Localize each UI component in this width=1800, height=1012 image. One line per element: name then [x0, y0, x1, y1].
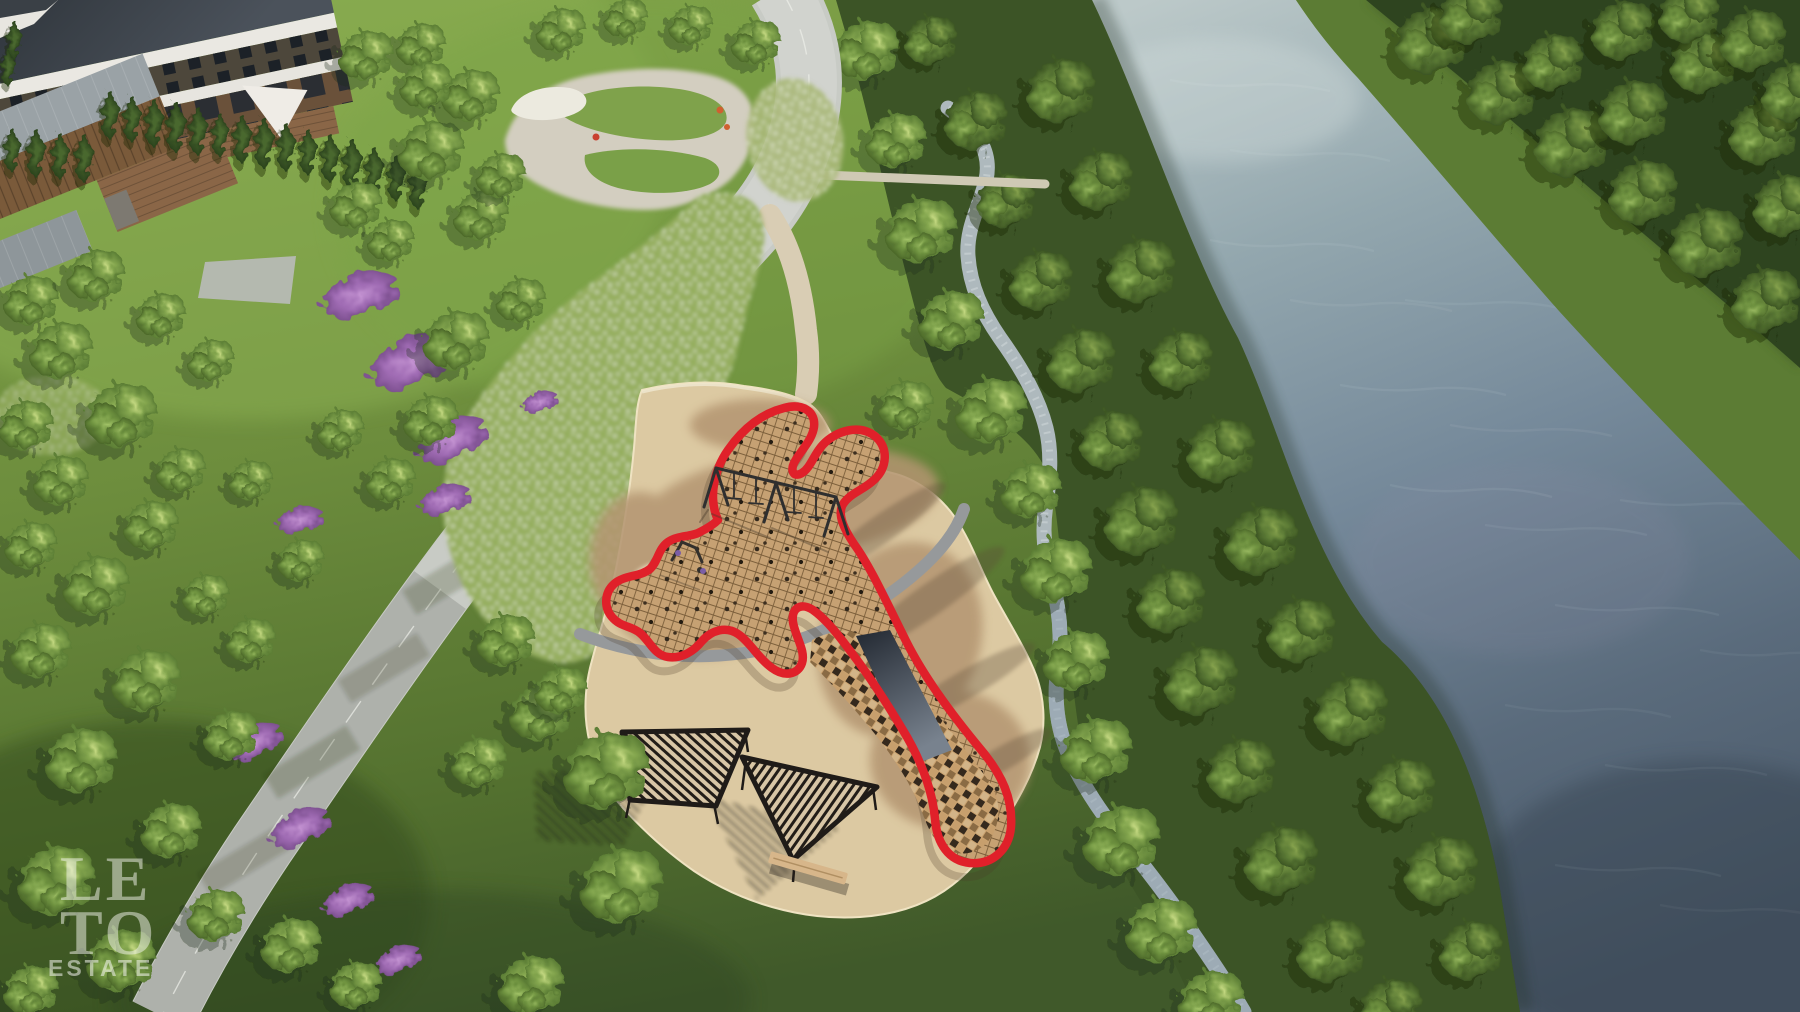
- aerial-render: LE TO ESTATE: [0, 0, 1800, 1012]
- watermark-logo: LE TO ESTATE: [48, 843, 157, 981]
- garden-play-equipment-red: [593, 134, 600, 141]
- logo-line-3: ESTATE: [48, 955, 153, 981]
- pump-handle-purple: [675, 550, 681, 556]
- garden-play-equipment-orange: [724, 124, 730, 130]
- scene-canvas: LE TO ESTATE: [0, 0, 1800, 1012]
- pump-handle-purple: [700, 568, 706, 574]
- terrace: [198, 256, 296, 304]
- water-sheen: [1350, 465, 1690, 655]
- garden-play-equipment-orange: [717, 107, 724, 114]
